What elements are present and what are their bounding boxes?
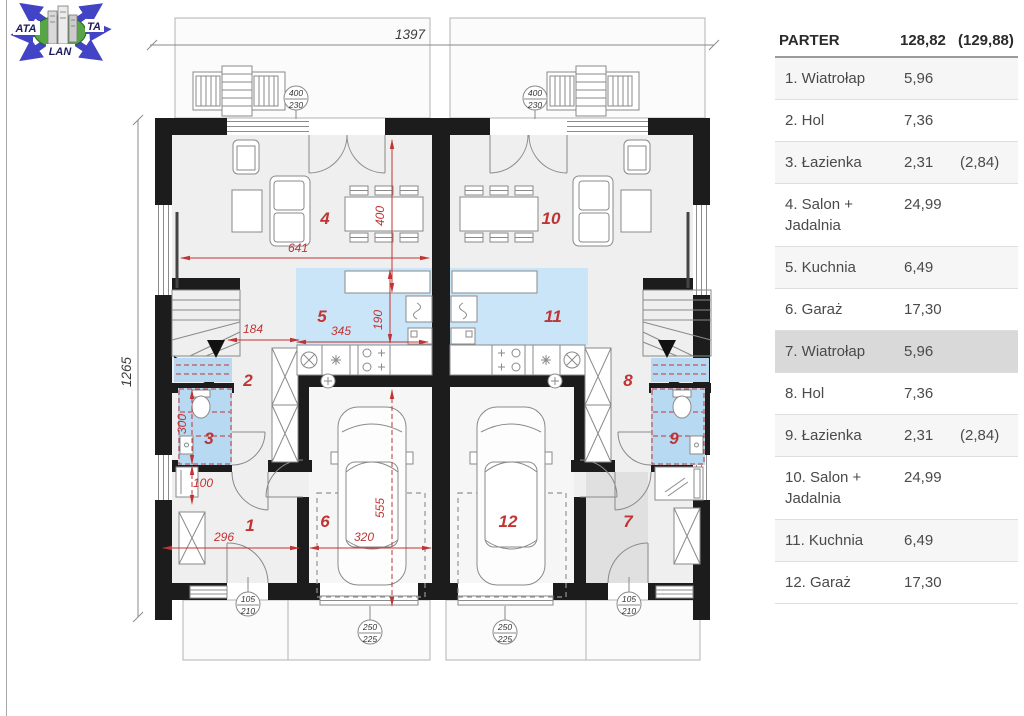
- room-area: 6,49: [904, 530, 960, 551]
- car-right: [470, 407, 552, 585]
- legend-title: PARTER: [779, 32, 900, 49]
- dim-320: 320: [354, 530, 374, 544]
- room-area: 7,36: [904, 383, 960, 404]
- legend-total: 128,82: [900, 32, 958, 49]
- room-area: 24,99: [904, 467, 960, 488]
- room-number-4: 4: [319, 209, 330, 228]
- room-number-8: 8: [623, 371, 633, 390]
- room-legend: PARTER 128,82 (129,88) 1. Wiatrołap 5,96…: [775, 28, 1018, 604]
- svg-text:105: 105: [622, 594, 636, 604]
- svg-text:400: 400: [289, 88, 303, 98]
- legend-total-alt: (129,88): [958, 32, 1010, 49]
- svg-text:250: 250: [362, 622, 377, 632]
- room-label: 7. Wiatrołap: [785, 341, 904, 362]
- svg-text:400: 400: [528, 88, 542, 98]
- dim-345: 345: [331, 324, 351, 338]
- room-area: 2,31: [904, 425, 960, 446]
- legend-row-6[interactable]: 6. Garaż 17,30: [775, 289, 1018, 331]
- legend-row-8[interactable]: 8. Hol 7,36: [775, 373, 1018, 415]
- dim-100: 100: [193, 476, 213, 490]
- dim-555: 555: [373, 498, 387, 518]
- legend-row-4[interactable]: 4. Salon + Jadalnia 24,99: [775, 184, 1018, 247]
- patio-furniture-left: [193, 66, 285, 116]
- legend-row-5[interactable]: 5. Kuchnia 6,49: [775, 247, 1018, 289]
- floor-plan: 641 400 345 190 184 300 100 296 320 555 …: [0, 0, 780, 716]
- room-area: 5,96: [904, 68, 960, 89]
- dim-296: 296: [213, 530, 234, 544]
- room-label: 1. Wiatrołap: [785, 68, 904, 89]
- legend-header: PARTER 128,82 (129,88): [775, 28, 1018, 58]
- svg-text:105: 105: [241, 594, 255, 604]
- shower-box-right: [655, 467, 703, 500]
- room-number-11: 11: [544, 307, 562, 326]
- legend-row-10[interactable]: 10. Salon + Jadalnia 24,99: [775, 457, 1018, 520]
- room-label: 5. Kuchnia: [785, 257, 904, 278]
- room-number-12: 12: [499, 512, 518, 531]
- car-left: [331, 407, 413, 585]
- room-label: 9. Łazienka: [785, 425, 904, 446]
- room-label: 8. Hol: [785, 383, 904, 404]
- room-7-floor: [586, 472, 648, 583]
- room-area: 5,96: [904, 341, 960, 362]
- room-area: 6,49: [904, 257, 960, 278]
- room-number-7: 7: [623, 512, 634, 531]
- dim-641: 641: [288, 241, 308, 255]
- room-number-5: 5: [317, 307, 327, 326]
- room-area: 17,30: [904, 299, 960, 320]
- svg-text:230: 230: [527, 100, 542, 110]
- room-label: 12. Garaż: [785, 572, 904, 593]
- room-number-2: 2: [242, 371, 253, 390]
- svg-text:250: 250: [497, 622, 512, 632]
- legend-row-2[interactable]: 2. Hol 7,36: [775, 100, 1018, 142]
- legend-row-3[interactable]: 3. Łazienka 2,31 (2,84): [775, 142, 1018, 184]
- legend-row-11[interactable]: 11. Kuchnia 6,49: [775, 520, 1018, 562]
- bathroom-9: [651, 388, 705, 465]
- dim-1265: 1265: [119, 356, 134, 387]
- dim-1397: 1397: [395, 27, 426, 42]
- room-number-10: 10: [542, 209, 561, 228]
- legend-row-1[interactable]: 1. Wiatrołap 5,96: [775, 58, 1018, 100]
- room-number-3: 3: [204, 429, 214, 448]
- room-label: 2. Hol: [785, 110, 904, 131]
- room-area-alt: (2,84): [960, 425, 1010, 446]
- svg-text:225: 225: [497, 634, 512, 644]
- dim-400: 400: [373, 206, 387, 226]
- room-area-alt: (2,84): [960, 152, 1010, 173]
- room-number-9: 9: [669, 429, 679, 448]
- room-area: 24,99: [904, 194, 960, 215]
- room-label: 6. Garaż: [785, 299, 904, 320]
- dim-190: 190: [371, 310, 385, 330]
- legend-row-9[interactable]: 9. Łazienka 2,31 (2,84): [775, 415, 1018, 457]
- room-area: 7,36: [904, 110, 960, 131]
- legend-row-7-selected[interactable]: 7. Wiatrołap 5,96: [775, 331, 1018, 373]
- dim-300: 300: [175, 414, 189, 434]
- svg-text:225: 225: [362, 634, 377, 644]
- legend-row-12[interactable]: 12. Garaż 17,30: [775, 562, 1018, 604]
- room-label: 4. Salon + Jadalnia: [785, 194, 904, 236]
- room-label: 3. Łazienka: [785, 152, 904, 173]
- room-area: 2,31: [904, 152, 960, 173]
- room-number-1: 1: [245, 516, 254, 535]
- room-number-6: 6: [320, 512, 330, 531]
- svg-text:210: 210: [240, 606, 255, 616]
- room-label: 10. Salon + Jadalnia: [785, 467, 904, 509]
- svg-text:210: 210: [621, 606, 636, 616]
- dim-184: 184: [243, 322, 263, 336]
- svg-text:230: 230: [288, 100, 303, 110]
- room-area: 17,30: [904, 572, 960, 593]
- room-label: 11. Kuchnia: [785, 530, 904, 551]
- patio-furniture-right: [547, 66, 639, 116]
